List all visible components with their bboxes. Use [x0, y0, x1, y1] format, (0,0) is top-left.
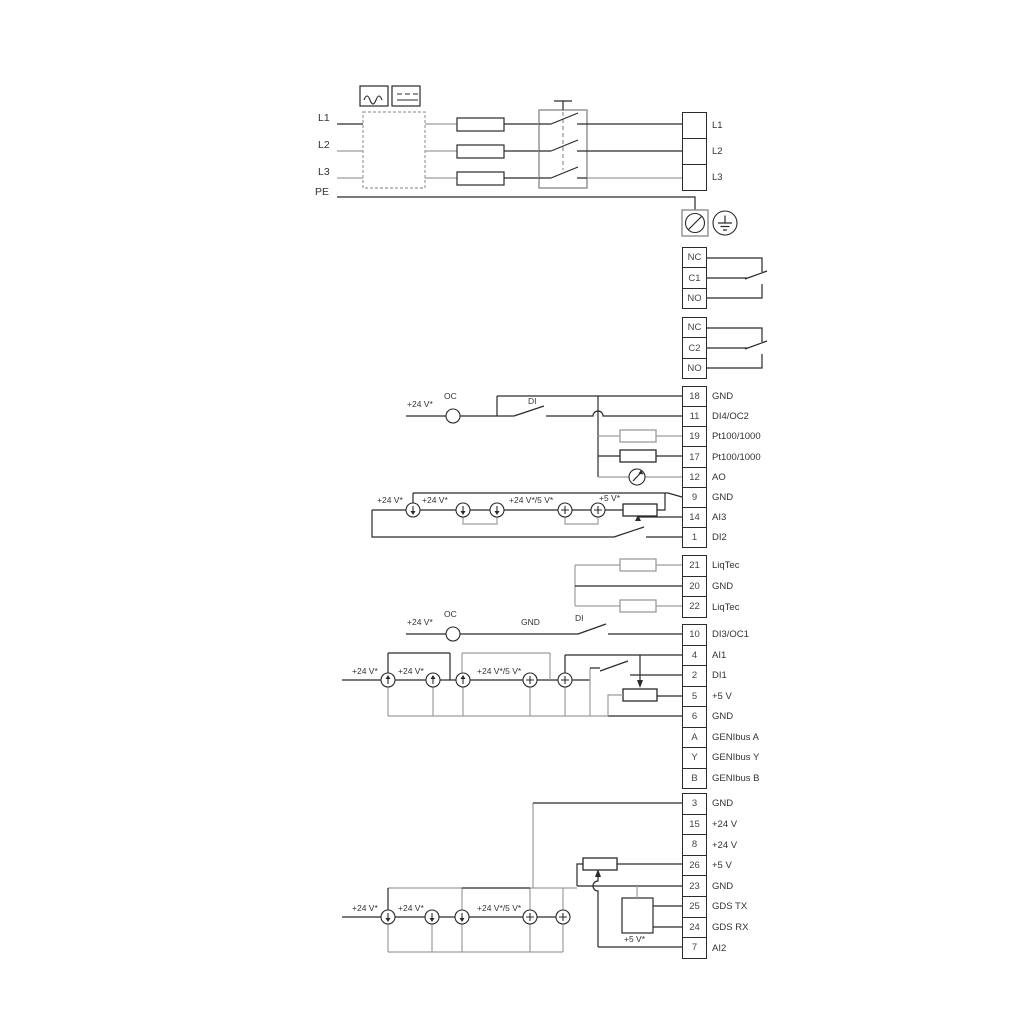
terminal-cell-io2-6: 6: [682, 706, 707, 728]
terminal-label-io3-25: GDS TX: [712, 901, 747, 912]
terminal-cell-mains-L2: [682, 138, 707, 165]
terminal-cell-io3-3: 3: [682, 793, 707, 815]
relay-contact-icon: [707, 258, 762, 272]
terminal-label-io3-15: +24 V: [712, 819, 737, 830]
terminal-cell-io1-18: 18: [682, 386, 707, 407]
terminal-cell-mains-L3: [682, 164, 707, 191]
terminal-cell-relay2-NC: NC: [682, 317, 707, 338]
terminal-cell-io2-5: 5: [682, 686, 707, 708]
terminal-cell-io1-14: 14: [682, 507, 707, 528]
liqtec-resistor: [620, 600, 656, 612]
terminal-label-io1-17: Pt100/1000: [712, 452, 761, 463]
wiring-diagram: [0, 0, 1024, 1024]
label-oc-di3: OC: [444, 610, 457, 619]
terminal-label-io3-3: GND: [712, 798, 733, 809]
terminal-label-io3-8: +24 V: [712, 840, 737, 851]
terminal-label-io2-5: +5 V: [712, 691, 732, 702]
terminal-cell-io1-9: 9: [682, 487, 707, 508]
dc-symbol-icon: [392, 86, 420, 106]
di-switch-icon: [590, 661, 682, 675]
label-v24-ai3-2: +24 V*: [422, 496, 448, 505]
terminal-label-io1-1: DI2: [712, 532, 727, 543]
terminal-cell-relay1-C1: C1: [682, 267, 707, 288]
terminal-label-io3-24: GDS RX: [712, 922, 748, 933]
terminal-cell-io1-12: 12: [682, 467, 707, 488]
terminal-cell-io3-15: 15: [682, 814, 707, 836]
terminal-cell-relay2-NO: NO: [682, 358, 707, 379]
open-collector-icon: [446, 627, 460, 641]
terminal-label-io2-A: GENIbus A: [712, 732, 759, 743]
label-oc-di4: OC: [444, 392, 457, 401]
terminal-cell-io2-Y: Y: [682, 747, 707, 769]
liqtec-resistor: [620, 559, 656, 571]
terminal-cell-io1-1: 1: [682, 527, 707, 548]
terminal-cell-io1-11: 11: [682, 406, 707, 427]
terminal-label-io2-B: GENIbus B: [712, 773, 760, 784]
terminal-cell-relay2-C2: C2: [682, 337, 707, 358]
terminal-cell-liqtec-22: 22: [682, 596, 707, 618]
terminal-cell-io3-25: 25: [682, 896, 707, 918]
terminal-label-io2-Y: GENIbus Y: [712, 752, 759, 763]
terminal-cell-liqtec-21: 21: [682, 555, 707, 577]
terminal-cell-io3-26: 26: [682, 855, 707, 877]
label-phase-l1-left: L1: [318, 113, 330, 124]
terminal-cell-mains-L1: [682, 112, 707, 139]
terminal-label-io1-11: DI4/OC2: [712, 411, 749, 422]
pe-lead: [337, 197, 695, 210]
pt100-resistor: [620, 450, 656, 462]
label-v24or5-ai2: +24 V*/5 V*: [477, 904, 521, 913]
terminal-cell-io2-B: B: [682, 768, 707, 790]
terminal-label-io1-9: GND: [712, 492, 733, 503]
di-switch-icon: [460, 406, 682, 416]
label-v24or5-ai1: +24 V*/5 V*: [477, 667, 521, 676]
terminal-label-io2-6: GND: [712, 711, 733, 722]
terminal-label-io2-2: DI1: [712, 670, 727, 681]
label-phase-pe-left: PE: [315, 187, 329, 198]
label-v24-ai1-1: +24 V*: [352, 667, 378, 676]
label-v24-ai2-2: +24 V*: [398, 904, 424, 913]
terminal-label-io2-10: DI3/OC1: [712, 629, 749, 640]
label-v24-di4: +24 V*: [407, 400, 433, 409]
label-v24or5-ai3: +24 V*/5 V*: [509, 496, 553, 505]
terminal-label-mains-L1: L1: [712, 120, 723, 131]
potentiometer: [623, 504, 657, 516]
label-v5-gds: +5 V*: [624, 935, 645, 944]
terminal-cell-io2-2: 2: [682, 665, 707, 687]
potentiometer: [623, 689, 657, 701]
terminal-label-io2-4: AI1: [712, 650, 726, 661]
terminal-cell-io2-4: 4: [682, 645, 707, 667]
terminal-label-mains-L3: L3: [712, 172, 723, 183]
emc-filter-box: [363, 112, 425, 188]
terminal-label-io1-12: AO: [712, 472, 726, 483]
label-phase-l3-left: L3: [318, 167, 330, 178]
potentiometer: [583, 858, 617, 870]
label-v24-ai3-1: +24 V*: [377, 496, 403, 505]
label-v24-ai2-1: +24 V*: [352, 904, 378, 913]
label-di-di4: DI: [528, 397, 537, 406]
terminal-cell-io3-8: 8: [682, 834, 707, 856]
switch-handle: [554, 101, 572, 110]
terminal-cell-io3-7: 7: [682, 937, 707, 959]
terminal-cell-io1-17: 17: [682, 446, 707, 467]
terminal-label-io1-18: GND: [712, 391, 733, 402]
wiring-diagram-page: L1L2L3PE+24 V*OCDI+24 V*+24 V*+24 V*/5 V…: [0, 0, 1024, 1024]
terminal-label-liqtec-21: LiqTec: [712, 560, 739, 571]
terminal-label-io3-23: GND: [712, 881, 733, 892]
terminal-label-io3-7: AI2: [712, 943, 726, 954]
terminal-cell-relay1-NC: NC: [682, 247, 707, 268]
terminal-label-mains-L2: L2: [712, 146, 723, 157]
terminal-label-io1-14: AI3: [712, 512, 726, 523]
terminal-cell-io2-10: 10: [682, 624, 707, 646]
label-v24-ai1-2: +24 V*: [398, 667, 424, 676]
label-gnd-di3: GND: [521, 618, 540, 627]
fuse: [457, 172, 504, 185]
terminal-cell-liqtec-20: 20: [682, 576, 707, 598]
label-v24-di3: +24 V*: [407, 618, 433, 627]
open-collector-icon: [446, 409, 460, 423]
label-v5-ai3: +5 V*: [599, 494, 620, 503]
fuse: [457, 145, 504, 158]
label-phase-l2-left: L2: [318, 140, 330, 151]
label-di-di3: DI: [575, 614, 584, 623]
terminal-cell-io3-24: 24: [682, 917, 707, 939]
terminal-label-io3-26: +5 V: [712, 860, 732, 871]
terminal-label-liqtec-22: LiqTec: [712, 602, 739, 613]
pt100-resistor: [620, 430, 656, 442]
terminal-label-liqtec-20: GND: [712, 581, 733, 592]
relay-contact-icon: [707, 328, 762, 342]
fuse: [457, 118, 504, 131]
terminal-label-io1-19: Pt100/1000: [712, 431, 761, 442]
terminal-cell-io3-23: 23: [682, 875, 707, 897]
terminal-cell-relay1-NO: NO: [682, 288, 707, 309]
terminal-cell-io2-A: A: [682, 727, 707, 749]
gds-sensor-box: [622, 898, 653, 933]
terminal-cell-io1-19: 19: [682, 426, 707, 447]
